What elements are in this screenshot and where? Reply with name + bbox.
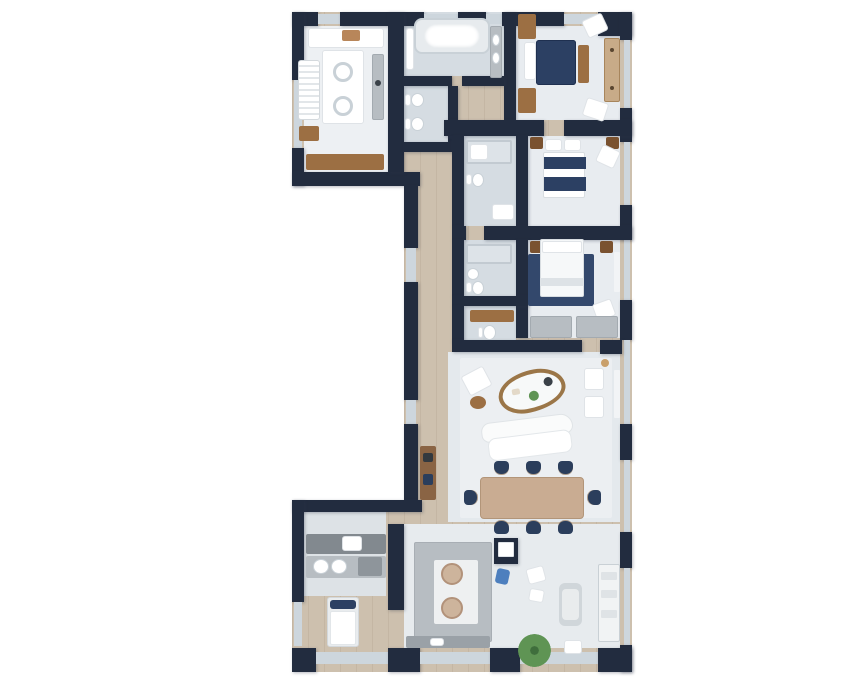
wall-bath-south-a xyxy=(404,76,452,86)
wall-bottom-2 xyxy=(388,648,420,672)
floor-plan xyxy=(0,0,860,688)
wall-bottom-top xyxy=(292,500,422,512)
bed2-duvet-stripe-2 xyxy=(544,177,586,191)
wall-ensuite3-bed3 xyxy=(516,240,528,338)
kitchen-pass-opening xyxy=(498,542,514,557)
window-sill-2 xyxy=(614,252,620,292)
terrace-plant xyxy=(518,634,551,667)
master-bed-bench xyxy=(578,45,589,83)
coffee-table-bowl xyxy=(543,376,553,386)
cooktop-2 xyxy=(441,597,463,619)
master-bed-pillows xyxy=(524,42,536,80)
guestwc-bench xyxy=(470,310,514,322)
utility-counter-tray xyxy=(342,30,360,41)
window-top-1 xyxy=(318,14,340,24)
terrace-mat xyxy=(564,640,582,654)
coffee-table-plant xyxy=(528,390,540,402)
washer-drum-icon xyxy=(333,62,353,82)
walkin-cabinet-2 xyxy=(576,316,618,338)
master-closet-a xyxy=(518,14,536,39)
terrace-lounger-cushion xyxy=(562,589,579,620)
wall-ensuite3-west xyxy=(452,240,464,296)
ensuite2-vanity xyxy=(492,204,514,220)
wall-bottom-4 xyxy=(598,648,632,672)
window-bottom-1 xyxy=(316,652,388,664)
wall-utility-bath xyxy=(388,12,404,172)
console-decor-1 xyxy=(423,453,433,462)
ensuite3-sink xyxy=(467,268,479,280)
vanity-sink-1 xyxy=(492,34,500,46)
coffee-table-tray xyxy=(511,388,520,395)
ensuite2-toilet-bowl xyxy=(472,173,484,187)
dining-chair-1 xyxy=(494,461,509,474)
living-side-table xyxy=(470,396,486,409)
wardrobe-knob-1 xyxy=(610,48,614,52)
wc-floor xyxy=(404,86,448,142)
walkin-cabinet-1 xyxy=(530,316,572,338)
staff-bed-duvet xyxy=(330,611,356,645)
wall-mid-west-b xyxy=(404,282,418,400)
wc-toilet-bowl-1 xyxy=(411,93,424,107)
terrace-counter-item-3 xyxy=(601,610,617,618)
kitchen-back-sink xyxy=(430,638,444,646)
wall-right-4 xyxy=(620,300,632,340)
window-right-6 xyxy=(624,568,630,645)
bed2-pillow-right xyxy=(564,139,581,151)
dryer-drum-icon xyxy=(333,96,353,116)
dining-chair-4 xyxy=(494,521,509,534)
ensuite3-toilet-bowl xyxy=(472,281,484,295)
terrace-counter-item-1 xyxy=(601,572,617,580)
cooktop-1 xyxy=(441,563,463,585)
wall-right-1 xyxy=(620,12,632,40)
window-bottom-2 xyxy=(420,652,490,664)
wall-ensuite2-west xyxy=(452,136,464,226)
wall-bed2-bed3-a xyxy=(452,226,466,240)
ensuite2-shower-tray xyxy=(470,144,488,160)
living-armchair-2 xyxy=(584,396,604,418)
master-closet-b xyxy=(518,88,536,113)
ensuite3-shower xyxy=(466,244,512,264)
wall-wc-south xyxy=(404,142,458,152)
window-mid-west-1 xyxy=(406,248,416,282)
bath-shelf xyxy=(406,28,414,70)
terrace-chair xyxy=(528,588,545,603)
utility-cabinet-handle xyxy=(375,80,381,86)
wall-guestwc-west xyxy=(452,306,464,342)
living-armchair-1 xyxy=(584,368,604,390)
utility-bench xyxy=(306,154,384,170)
wall-top-2 xyxy=(340,12,424,26)
wall-hall-b xyxy=(564,120,632,136)
window-right-3 xyxy=(624,240,630,300)
laundry-machine xyxy=(358,557,382,576)
wall-bed2-bed3-b xyxy=(484,226,632,240)
wc-bidet-bowl xyxy=(411,117,424,131)
kitchen-back-counter xyxy=(406,636,490,648)
dining-table xyxy=(480,477,584,519)
dining-chair-8 xyxy=(588,490,601,505)
bed2-nightstand-left xyxy=(530,137,543,149)
utility-daybed xyxy=(298,60,320,120)
bed2-duvet-stripe-1 xyxy=(544,157,586,169)
wall-left-bottom xyxy=(292,500,304,602)
dining-chair-2 xyxy=(526,461,541,474)
laundry-sink-1 xyxy=(313,559,329,574)
wall-ensuite2-bed2 xyxy=(516,136,528,226)
wall-right-5 xyxy=(620,424,632,460)
bathtub-basin xyxy=(424,24,480,48)
window-sill-3 xyxy=(614,370,620,418)
wall-right-6 xyxy=(620,532,632,568)
bed3-duvet-fold xyxy=(540,278,584,286)
wall-mid-west-a xyxy=(404,186,418,248)
staff-bed-pillow xyxy=(330,600,356,609)
window-right-5 xyxy=(624,460,630,532)
window-right-2 xyxy=(624,142,630,205)
laundry-room-floor xyxy=(304,512,386,596)
vanity-sink-2 xyxy=(492,52,500,64)
entry-console xyxy=(420,446,436,500)
wall-kitchen-west xyxy=(388,524,404,610)
utility-side-table xyxy=(299,126,319,141)
master-bed xyxy=(536,40,576,85)
wardrobe-knob-2 xyxy=(610,86,614,90)
guestwc-toilet-bowl xyxy=(483,325,496,340)
window-left-bottom xyxy=(294,602,302,646)
dining-chair-5 xyxy=(526,521,541,534)
floor-lamp xyxy=(601,359,609,367)
bed3-nightstand-right xyxy=(600,241,613,253)
bed3-pillows xyxy=(542,241,582,253)
wall-bottom-3 xyxy=(490,648,520,672)
wall-guestwc-north xyxy=(452,296,528,306)
window-right-1 xyxy=(624,40,630,108)
wall-hall-a xyxy=(444,120,544,136)
dining-chair-3 xyxy=(558,461,573,474)
dining-chair-6 xyxy=(558,521,573,534)
utility-tall-cabinet xyxy=(372,54,384,120)
bed2-bed xyxy=(543,152,585,198)
wall-bath-masterbed xyxy=(504,12,516,120)
console-decor-2 xyxy=(423,474,433,485)
laundry-sink-2 xyxy=(331,559,347,574)
wall-living-north-a xyxy=(452,340,582,352)
wall-living-north-b xyxy=(600,340,622,354)
window-right-4 xyxy=(624,340,630,424)
wall-bottom-1 xyxy=(292,648,316,672)
bed2-pillow-left xyxy=(545,139,562,151)
window-mid-west-2 xyxy=(406,400,416,424)
dining-chair-7 xyxy=(464,490,477,505)
wall-notch xyxy=(292,172,420,186)
laundry-appliance-front xyxy=(342,536,362,551)
wall-mid-west-c xyxy=(404,424,418,500)
terrace-counter-item-2 xyxy=(601,590,617,598)
